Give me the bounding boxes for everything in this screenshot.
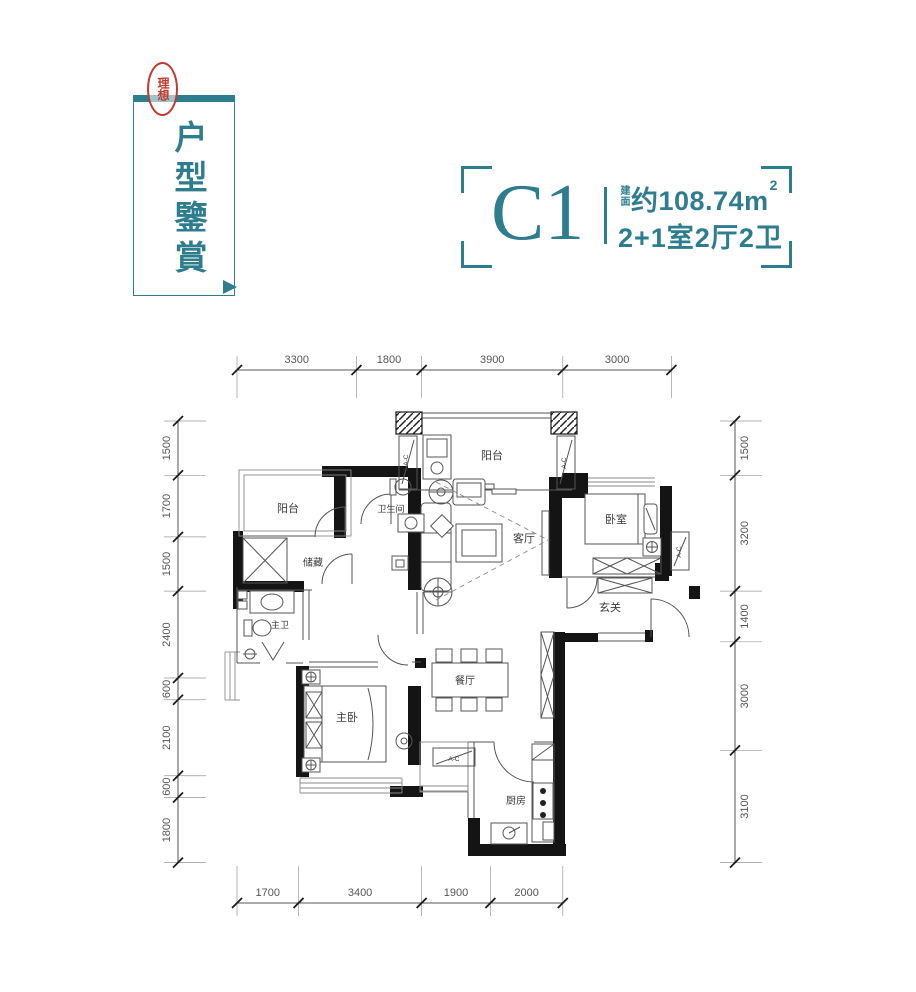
washing-machine — [423, 435, 451, 479]
dim-label: 3100 — [739, 794, 751, 818]
label-ac-4: A-C — [448, 756, 460, 763]
label-balcony-left: 阳台 — [277, 501, 299, 515]
label-balcony-top: 阳台 — [481, 448, 503, 462]
dim-label: 3000 — [739, 684, 751, 708]
label-master-bed: 主卧 — [336, 711, 358, 724]
label-kitchen: 厨房 — [506, 794, 526, 807]
dim-label: 1800 — [161, 818, 173, 842]
dim-label: 3000 — [605, 354, 629, 366]
dim-label: 3300 — [284, 354, 308, 366]
dim-label: 1900 — [444, 887, 468, 899]
floorplan-drawing: 3300180039003000170034001900200015001700… — [0, 0, 916, 992]
dim-label: 3900 — [480, 354, 504, 366]
label-storage: 储藏 — [303, 556, 323, 569]
dim-label: 2100 — [161, 726, 173, 750]
label-ac-3: A-C — [676, 546, 683, 558]
dim-label: 2000 — [514, 887, 538, 899]
coffee-table — [456, 524, 502, 562]
dim-label: 3400 — [348, 887, 372, 899]
label-bedroom: 卧室 — [605, 512, 627, 526]
label-ac-2: A-C — [561, 457, 568, 469]
label-ac-1: 2-A-C — [403, 454, 410, 471]
dim-label: 3200 — [739, 521, 751, 545]
label-dining: 餐厅 — [455, 674, 475, 687]
label-master-bath: 主卫 — [271, 619, 289, 630]
dim-label: 600 — [161, 680, 173, 698]
dim-label: 1700 — [256, 887, 280, 899]
dim-label: 1500 — [161, 436, 173, 460]
brand-seal-icon: 理想 — [147, 62, 178, 116]
dim-label: 1500 — [161, 552, 173, 576]
label-bathroom: 卫生间 — [377, 503, 404, 514]
entry-wardrobe — [593, 558, 661, 593]
dim-label: 1700 — [161, 494, 173, 518]
bedroom-nightstand — [643, 538, 661, 556]
dim-label: 2400 — [161, 622, 173, 646]
kitchen-fixtures — [491, 744, 554, 844]
floorplan-page: 户型鑒賞 理想 C1 建面 约108.74m 2 2+1室2厅2卫 330018… — [0, 0, 916, 992]
dim-label: 600 — [161, 777, 173, 795]
dim-label: 1500 — [739, 436, 751, 460]
label-living: 客厅 — [513, 531, 535, 545]
dim-label: 1800 — [377, 354, 401, 366]
label-entry: 玄关 — [599, 600, 621, 614]
dim-label: 1400 — [739, 604, 751, 628]
hatched-columns — [396, 412, 577, 434]
